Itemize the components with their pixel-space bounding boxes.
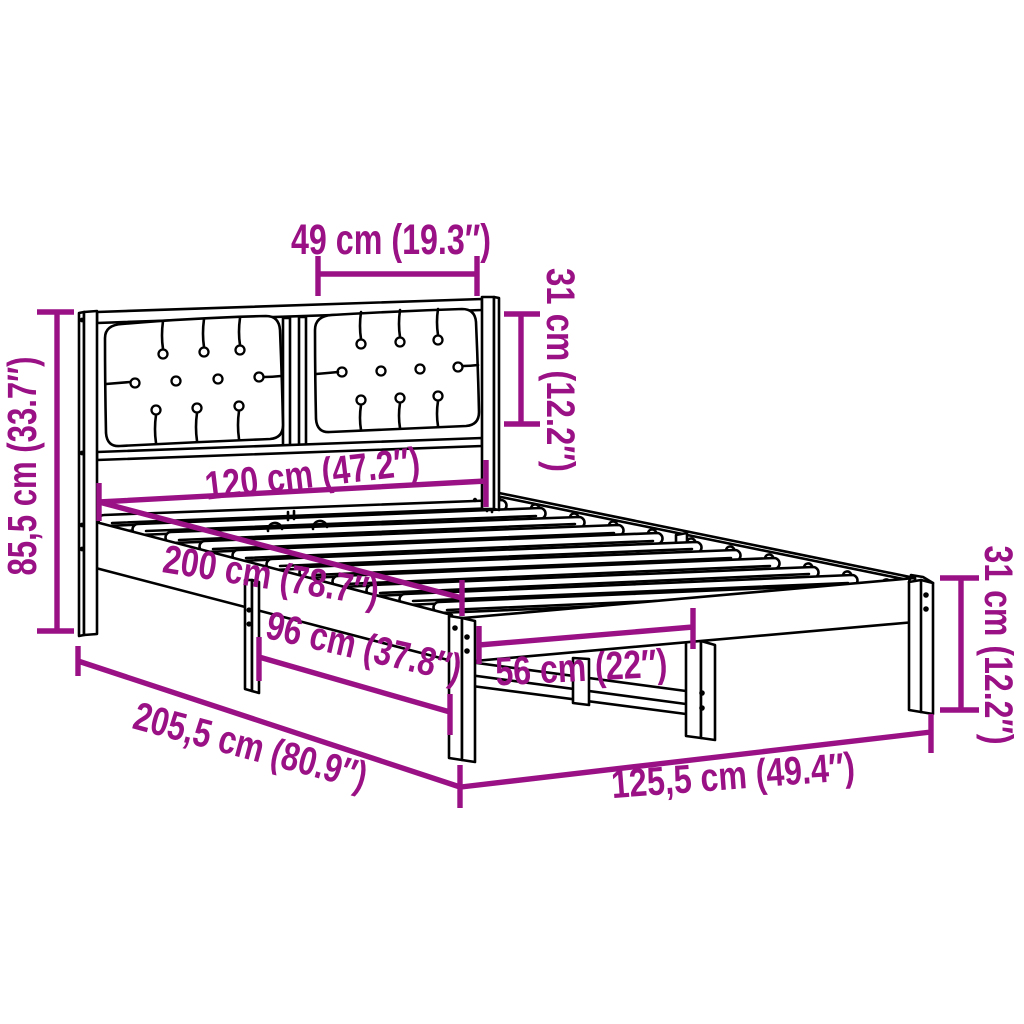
svg-text:85,5 cm (33.7″): 85,5 cm (33.7″) (0, 357, 45, 576)
svg-text:31 cm (12.2″): 31 cm (12.2″) (538, 268, 582, 472)
svg-text:31 cm (12.2″): 31 cm (12.2″) (976, 546, 1020, 745)
svg-text:56 cm (22″): 56 cm (22″) (494, 642, 668, 695)
svg-text:49 cm (19.3″): 49 cm (19.3″) (291, 216, 491, 264)
